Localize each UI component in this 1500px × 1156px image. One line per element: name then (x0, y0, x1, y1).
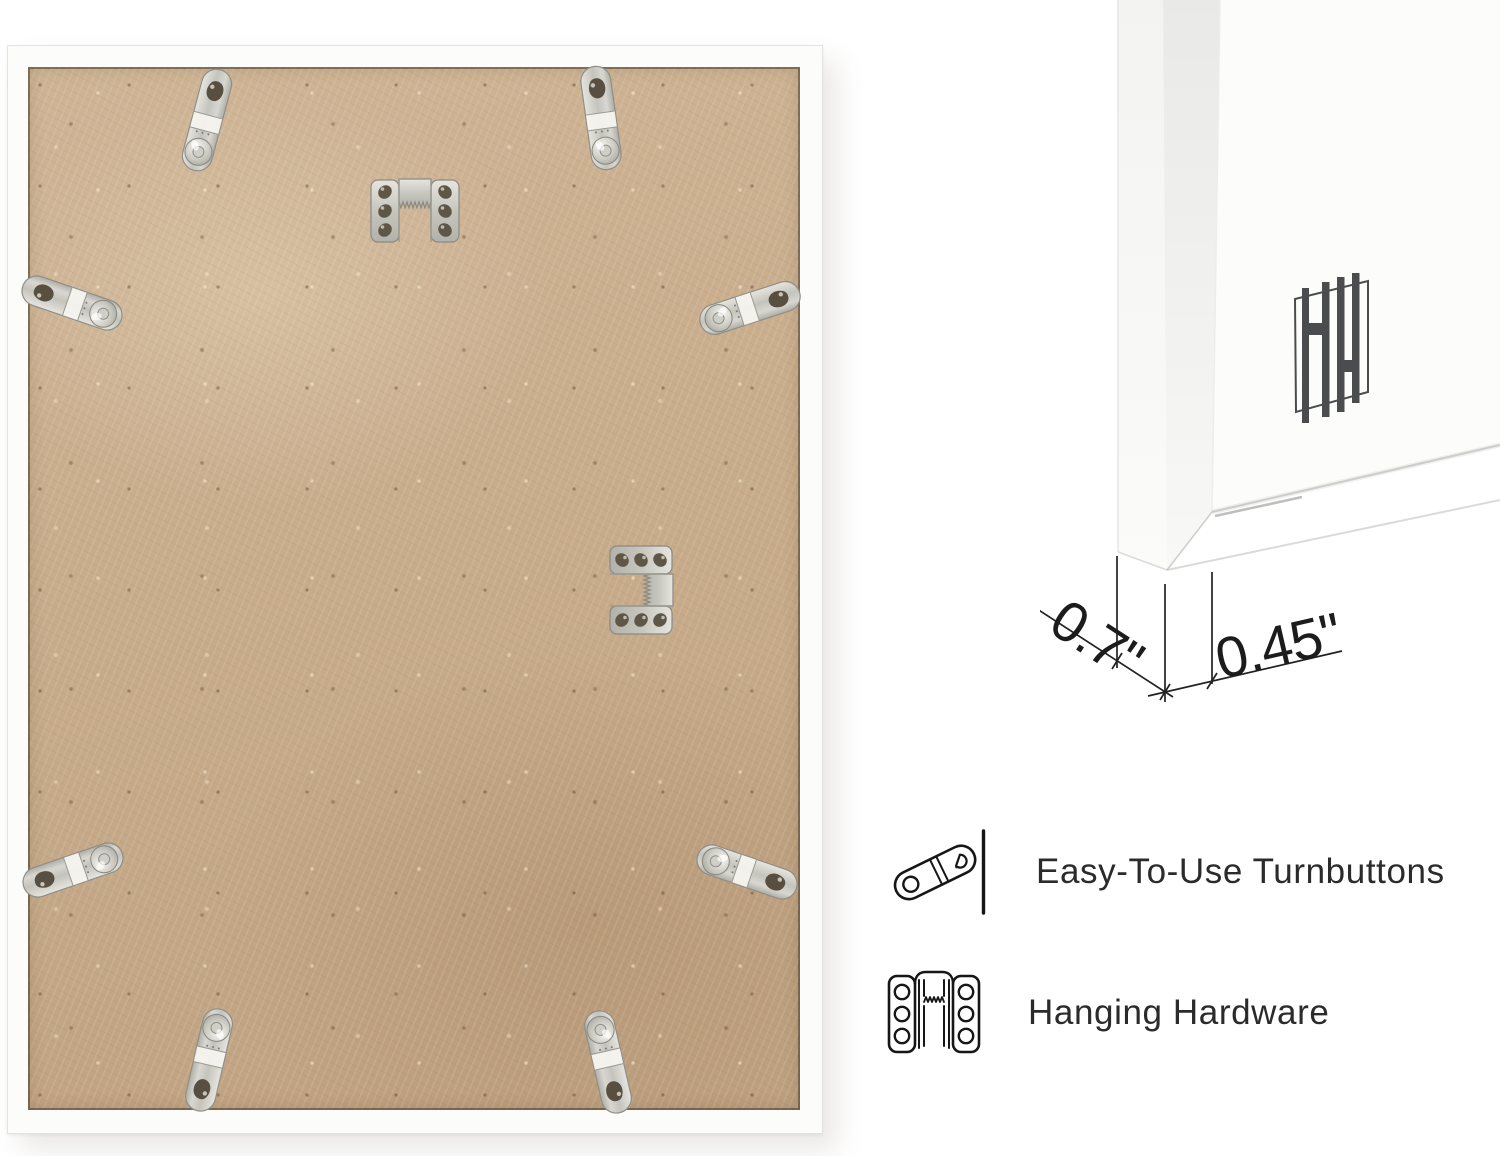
sawtooth-hanger-icon (886, 968, 982, 1058)
turnbutton-icon (886, 828, 990, 916)
frame-backing-board (28, 67, 800, 1110)
feature-item-turnbuttons: Easy-To-Use Turnbuttons (886, 828, 1445, 916)
feature-label: Hanging Hardware (1028, 993, 1329, 1033)
turnbutton-hardware (692, 272, 809, 344)
turnbutton-hardware (173, 62, 240, 179)
dimension-label-face-width: 0.45" (1210, 601, 1347, 692)
frame-back-photo (7, 45, 823, 1134)
frame-front-face-left (1163, 0, 1220, 570)
turnbutton-hardware (13, 266, 130, 340)
sawtooth-hanger-hardware (369, 177, 461, 245)
sawtooth-hanger-hardware (607, 544, 675, 636)
mat-area (1212, 0, 1500, 512)
turnbutton-hardware (688, 835, 805, 909)
dimension-label-depth: 0.7" (1040, 587, 1154, 693)
frame-side-face (1118, 0, 1167, 570)
product-infographic: 0.7" 0.45" Easy-To-Use Turnbuttons (0, 0, 1500, 1156)
turnbutton-hardware (574, 61, 629, 175)
frame-corner-closeup: 0.7" 0.45" (1040, 0, 1500, 730)
turnbutton-hardware (14, 833, 131, 907)
feature-item-hanging-hardware: Hanging Hardware (886, 968, 1329, 1058)
turnbutton-hardware (576, 1004, 640, 1120)
feature-label: Easy-To-Use Turnbuttons (1036, 852, 1445, 892)
turnbutton-hardware (177, 1002, 241, 1118)
